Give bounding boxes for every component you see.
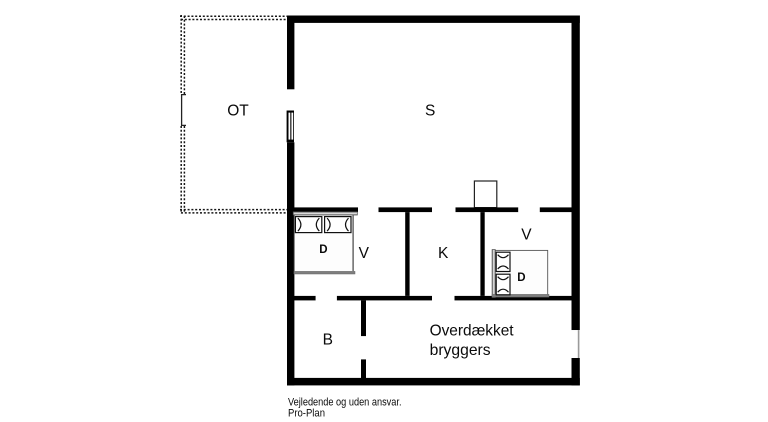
svg-text:V: V: [359, 245, 370, 262]
svg-text:bryggers: bryggers: [430, 342, 491, 359]
svg-text:D: D: [517, 272, 525, 284]
svg-text:S: S: [425, 103, 435, 120]
svg-text:Overdækket: Overdækket: [430, 323, 515, 340]
svg-text:K: K: [438, 245, 449, 262]
svg-text:Pro-Plan: Pro-Plan: [288, 407, 325, 419]
svg-text:V: V: [521, 227, 532, 244]
svg-text:D: D: [319, 244, 327, 256]
svg-text:OT: OT: [227, 102, 249, 119]
svg-text:B: B: [323, 331, 333, 348]
